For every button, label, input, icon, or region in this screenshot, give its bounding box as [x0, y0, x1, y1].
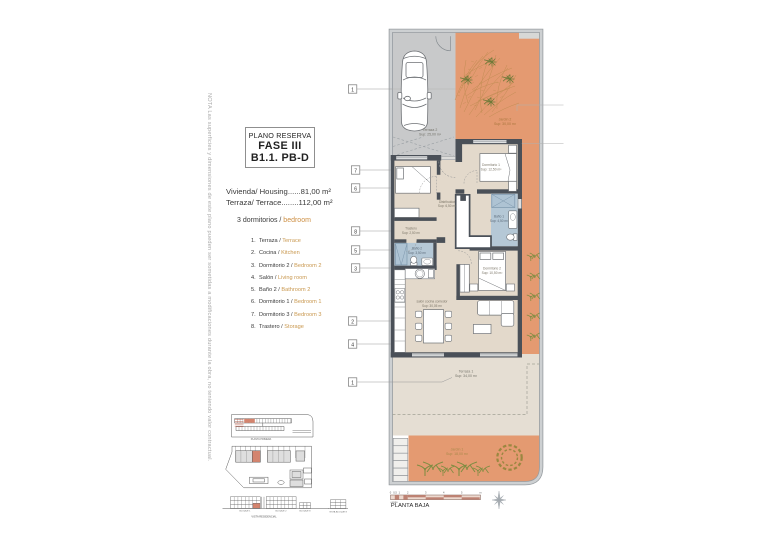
svg-text:Sup: 34,00 m²: Sup: 34,00 m² — [455, 374, 478, 378]
svg-text:Jardín 2: Jardín 2 — [499, 118, 512, 122]
svg-text:2: 2 — [351, 319, 354, 325]
svg-text:BLOQUE 8: BLOQUE 8 — [300, 511, 312, 513]
svg-text:Sup: 12,50 m²: Sup: 12,50 m² — [481, 167, 503, 171]
svg-text:7: 7 — [354, 168, 357, 174]
svg-text:2: 2 — [407, 491, 409, 495]
svg-text:4: 4 — [351, 342, 354, 348]
svg-text:m: m — [479, 492, 481, 495]
svg-text:Sup: 10,50 m²: Sup: 10,50 m² — [482, 271, 504, 275]
svg-text:Sup: 2,50 m²: Sup: 2,50 m² — [402, 231, 420, 235]
svg-text:PLANTA BAJA: PLANTA BAJA — [391, 503, 430, 509]
svg-text:5: 5 — [354, 248, 357, 254]
svg-text:PLANTA PRIMERA: PLANTA PRIMERA — [251, 438, 272, 441]
svg-text:Sup: 25,00 m²: Sup: 25,00 m² — [419, 133, 442, 137]
svg-text:6: 6 — [354, 186, 357, 192]
svg-text:Sup: 3,50 m²: Sup: 3,50 m² — [408, 251, 426, 255]
svg-text:Jardín 1: Jardín 1 — [451, 448, 464, 452]
svg-text:1: 1 — [398, 491, 400, 495]
svg-text:Sup: 4,50 m²: Sup: 4,50 m² — [490, 219, 508, 223]
svg-text:8: 8 — [354, 229, 357, 235]
svg-text:0,5: 0,5 — [393, 491, 397, 495]
svg-text:5: 5 — [461, 491, 463, 495]
svg-text:3: 3 — [425, 491, 427, 495]
svg-text:BLOQUE 1: BLOQUE 1 — [240, 511, 252, 513]
svg-text:4: 4 — [443, 491, 445, 495]
svg-text:Terraza 2: Terraza 2 — [423, 128, 438, 132]
svg-text:Sup: 18,00 m²: Sup: 18,00 m² — [446, 452, 469, 456]
svg-text:BLOQUE 2: BLOQUE 2 — [276, 511, 288, 513]
svg-text:Sup: 30,00 m²: Sup: 30,00 m² — [494, 122, 517, 126]
svg-text:1: 1 — [351, 380, 354, 386]
svg-text:0: 0 — [390, 491, 392, 495]
svg-text:Terraza 1: Terraza 1 — [459, 369, 474, 373]
svg-text:VISTA BLOQUE 8: VISTA BLOQUE 8 — [329, 510, 347, 513]
svg-text:1: 1 — [351, 87, 354, 93]
svg-text:VISTA RESIDENCIAL: VISTA RESIDENCIAL — [251, 514, 277, 518]
svg-text:Sup: 6,50 m²: Sup: 6,50 m² — [438, 204, 456, 208]
svg-text:Dormitorio 1: Dormitorio 1 — [482, 163, 500, 167]
svg-text:Sup: 30,05 m²: Sup: 30,05 m² — [422, 304, 442, 308]
svg-text:3: 3 — [354, 266, 357, 272]
